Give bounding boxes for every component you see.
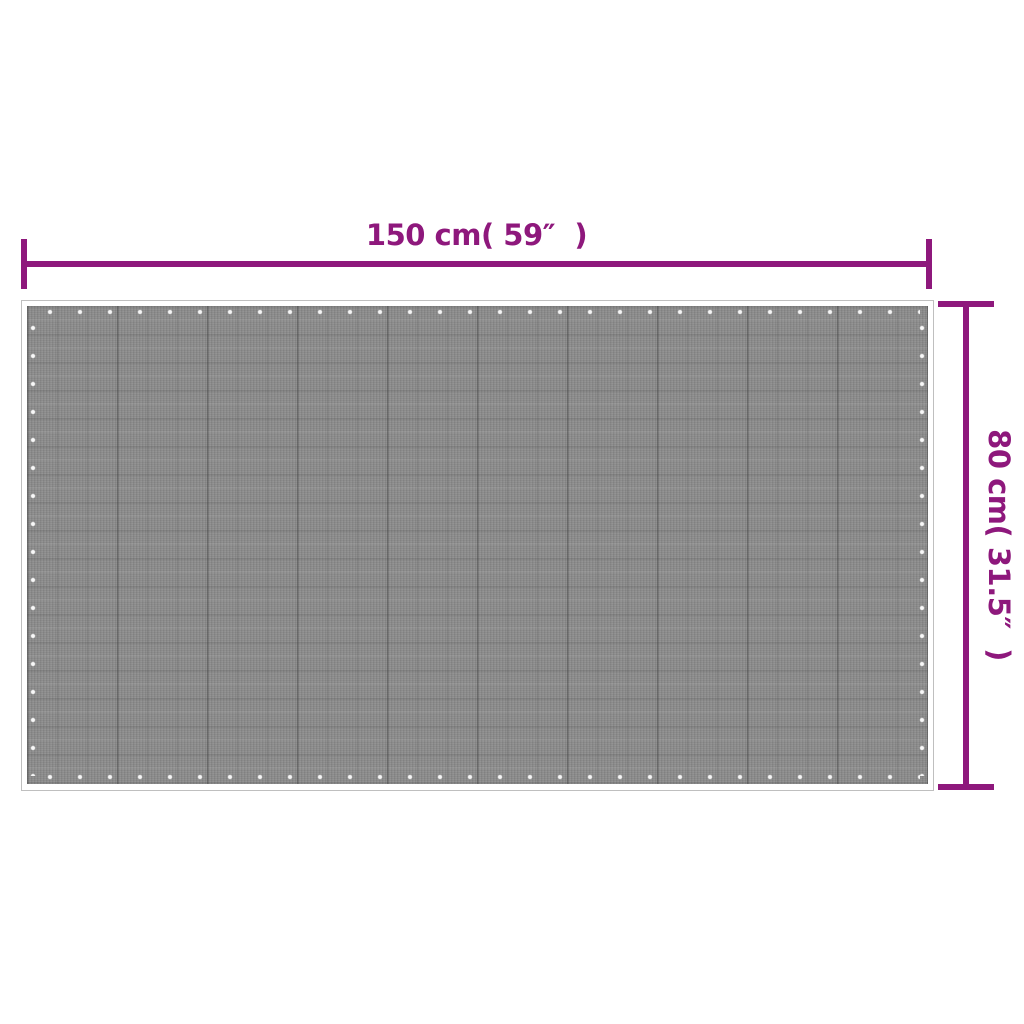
width-dimension-label: 150 cm( 59″ ): [21, 218, 932, 252]
mat-stitch-dots-bottom: [35, 773, 920, 781]
product-dimension-diagram: 150 cm( 59″ ) 80 cm( 31.5″ ): [0, 0, 1024, 1024]
width-dimension-left-cap: [21, 239, 27, 289]
width-dimension-right-cap: [926, 239, 932, 289]
height-dimension-bottom-cap: [938, 784, 994, 790]
height-dimension-label: 80 cm( 31.5″ ): [982, 429, 1016, 661]
width-dimension-line: [21, 261, 932, 267]
mat-stitch-dots-top: [35, 308, 920, 316]
height-dimension-line: [963, 301, 969, 790]
mat-woven-texture: [27, 306, 928, 784]
mat-stitch-dots-right: [918, 314, 926, 776]
height-dimension-top-cap: [938, 301, 994, 307]
mat-image: [21, 300, 934, 791]
mat-stitch-dots-left: [29, 314, 37, 776]
